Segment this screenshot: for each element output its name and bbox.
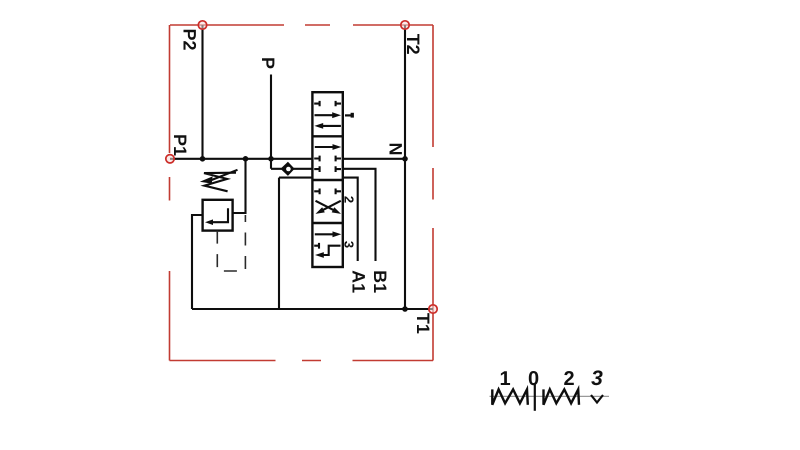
svg-text:3: 3 <box>591 367 603 390</box>
svg-text:T2: T2 <box>403 34 423 55</box>
svg-text:T1: T1 <box>413 313 433 334</box>
svg-text:2: 2 <box>563 368 574 390</box>
svg-text:1: 1 <box>499 368 510 390</box>
svg-text:2: 2 <box>342 196 357 203</box>
svg-text:A1: A1 <box>349 270 369 293</box>
svg-text:P2: P2 <box>180 28 200 50</box>
svg-text:3: 3 <box>342 241 357 248</box>
svg-text:P1: P1 <box>170 134 190 156</box>
svg-text:N: N <box>386 143 406 156</box>
svg-text:B1: B1 <box>370 270 390 293</box>
svg-text:0: 0 <box>528 368 539 390</box>
svg-text:P: P <box>258 57 278 69</box>
